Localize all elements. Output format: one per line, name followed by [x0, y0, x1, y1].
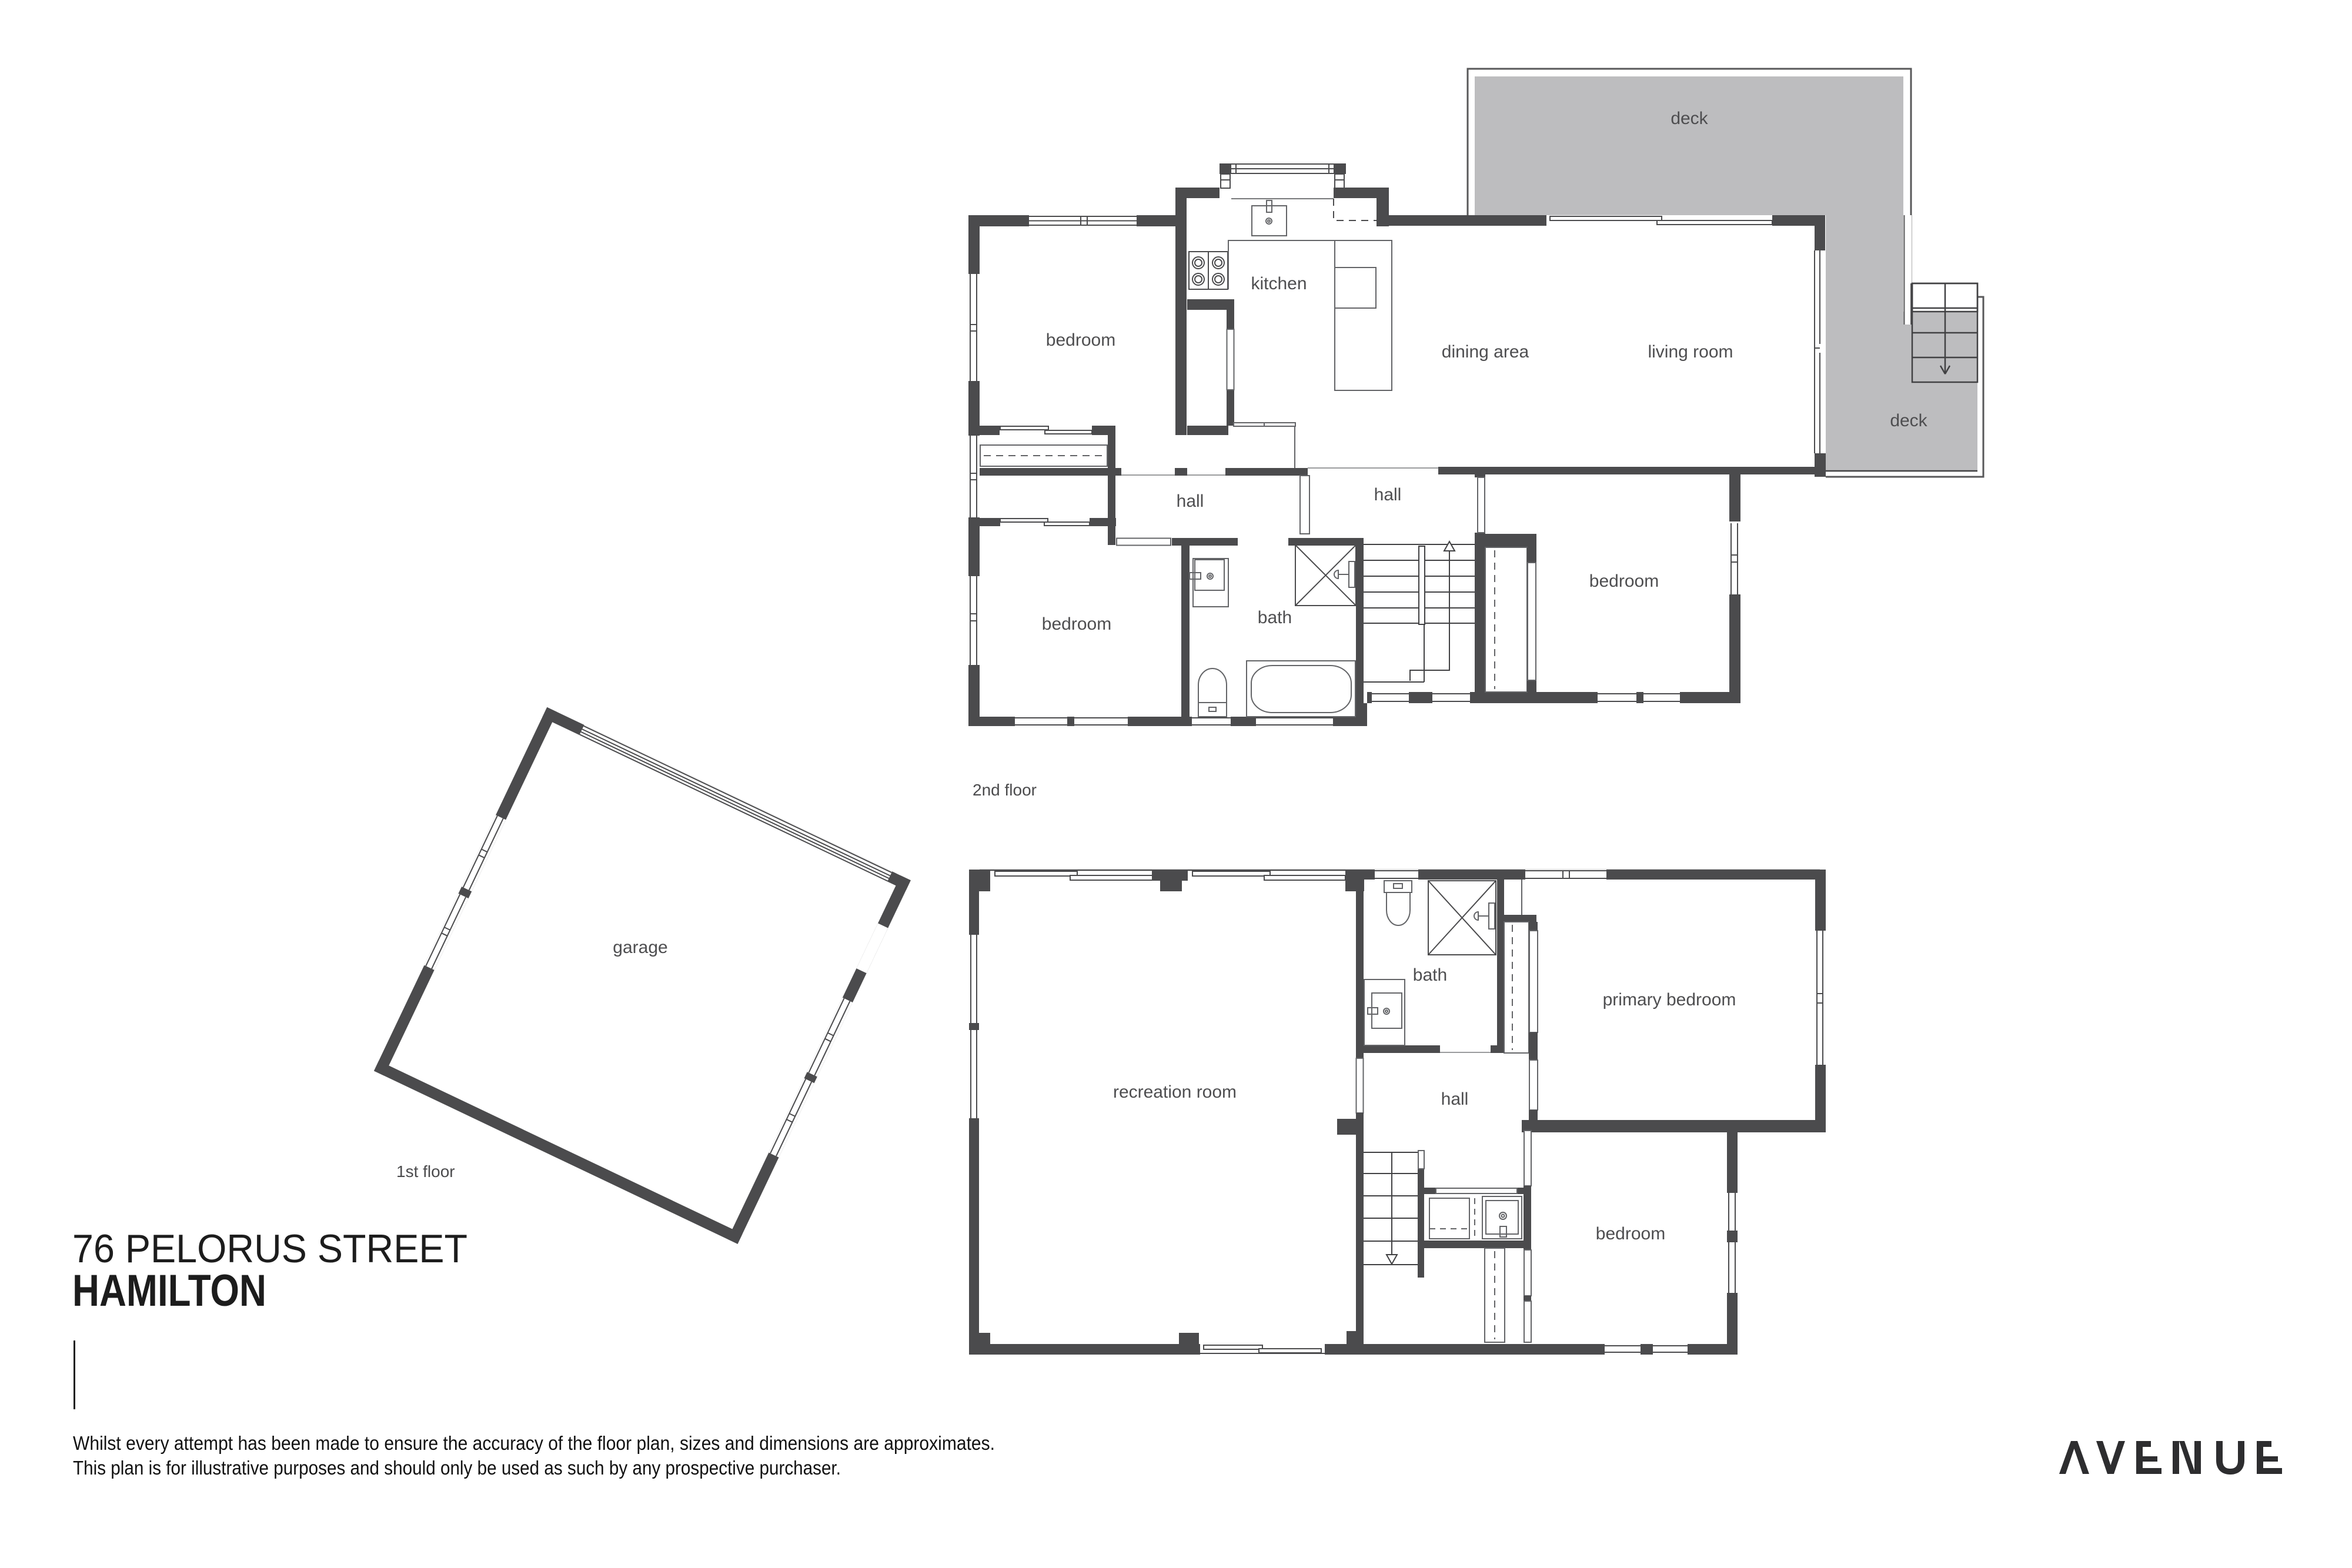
svg-text:hall: hall: [1374, 485, 1402, 504]
svg-text:1st floor: 1st floor: [396, 1162, 455, 1181]
svg-text:bedroom: bedroom: [1046, 330, 1115, 350]
svg-text:hall: hall: [1177, 492, 1204, 511]
svg-text:76 PELORUS STREET: 76 PELORUS STREET: [72, 1226, 467, 1271]
svg-text:bedroom: bedroom: [1596, 1224, 1665, 1243]
svg-text:deck: deck: [1890, 411, 1927, 430]
svg-text:living room: living room: [1648, 342, 1733, 362]
svg-text:HAMILTON: HAMILTON: [72, 1266, 266, 1316]
svg-text:recreation room: recreation room: [1113, 1082, 1237, 1102]
svg-text:hall: hall: [1441, 1089, 1469, 1109]
svg-text:bedroom: bedroom: [1589, 571, 1659, 591]
svg-text:This plan is for illustrative: This plan is for illustrative purposes a…: [73, 1457, 841, 1479]
svg-text:bedroom: bedroom: [1042, 614, 1111, 634]
svg-text:2nd floor: 2nd floor: [973, 781, 1037, 799]
svg-text:kitchen: kitchen: [1251, 274, 1307, 293]
svg-text:Whilst every attempt has been: Whilst every attempt has been made to en…: [73, 1432, 995, 1454]
svg-text:dining area: dining area: [1442, 342, 1529, 362]
svg-text:primary bedroom: primary bedroom: [1603, 990, 1736, 1009]
svg-text:garage: garage: [613, 938, 667, 957]
svg-text:bath: bath: [1413, 965, 1447, 985]
svg-text:deck: deck: [1671, 109, 1708, 128]
svg-text:bath: bath: [1258, 608, 1292, 627]
